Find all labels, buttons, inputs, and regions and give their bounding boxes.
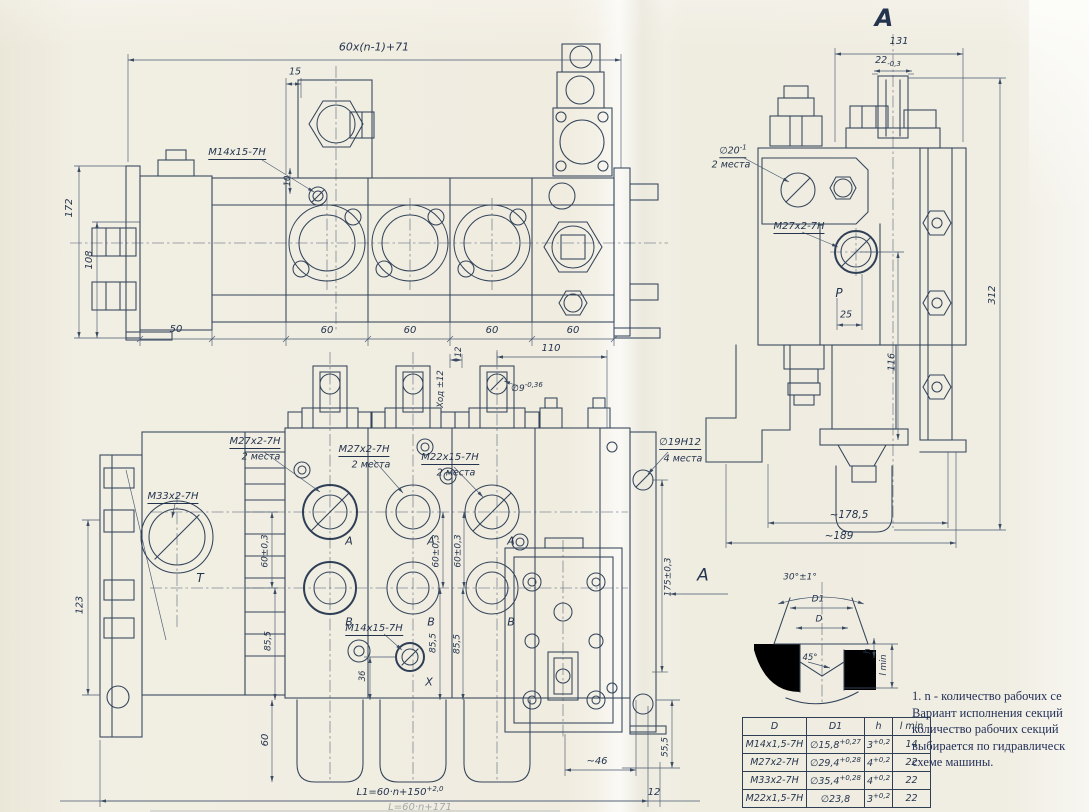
table-cell-d1: ∅35,4+0,28 xyxy=(807,772,865,790)
front-m14-port xyxy=(309,187,327,205)
table-cell-h: 3+0,2 xyxy=(865,736,893,754)
front-dim-60-4: 60 xyxy=(567,326,580,336)
front-dim-60-3: 60 xyxy=(486,326,499,336)
view-a-dim-131: 131 xyxy=(889,37,908,47)
plan-port-b-2: B xyxy=(427,617,435,628)
plan-d19-places: 4 места xyxy=(664,454,703,464)
plan-dim-stroke: Ход ±12 xyxy=(437,370,446,408)
view-a-dim-25: 25 xyxy=(840,310,852,320)
plan-dim-855-3: 85,5 xyxy=(454,634,463,654)
front-right-plate xyxy=(614,168,660,338)
front-left-bolts xyxy=(92,228,136,310)
plan-port-t: T xyxy=(196,572,203,584)
table-cell-d: M27x2-7H xyxy=(743,754,807,772)
table-header-row: D D1 h l min xyxy=(743,718,931,736)
table-cell-d: M22x1,5-7H xyxy=(743,790,807,808)
plan-dim-60-bottom: 60 xyxy=(261,734,271,747)
drawing-notes: 1. n - количество рабочих се Вариант исп… xyxy=(912,688,1089,771)
front-dim-15: 15 xyxy=(289,67,301,77)
plan-dim-l1: L1=60·n+150+2,0 xyxy=(356,786,443,798)
view-a-port-p: P xyxy=(835,287,842,299)
view-a-dim-22: 22-0,3 xyxy=(875,56,901,68)
view-a-callout-d20: ∅20-1 xyxy=(719,144,746,158)
note-line: Вариант исполнения секций xyxy=(912,705,1089,722)
table-cell-d1: ∅29,4+0,28 xyxy=(807,754,865,772)
plan-spool-towers xyxy=(288,366,610,428)
view-a-right-column xyxy=(920,148,952,440)
front-dim-108: 108 xyxy=(85,250,95,269)
view-a-title: A xyxy=(875,6,894,30)
plan-dim-12b: 12 xyxy=(648,788,661,798)
plan-dim-855-1: 85,5 xyxy=(265,631,274,651)
plan-dim-175-03: 175±0,3 xyxy=(665,557,674,596)
view-a-dim-312: 312 xyxy=(988,285,998,304)
plan-dim-123: 123 xyxy=(75,596,85,614)
view-a-dim-116: 116 xyxy=(887,353,897,371)
plan-dim-60-03-2: 60±0,3 xyxy=(433,534,442,567)
table-cell-d: M14x1,5-7H xyxy=(743,736,807,754)
table-row: M22x1,5-7H ∅23,8 3+0,2 22 xyxy=(743,790,931,808)
plan-dim-46: ~46 xyxy=(586,757,607,767)
table-row: M33x2-7H ∅35,4+0,28 4+0,2 22 xyxy=(743,772,931,790)
plan-dim-l2: L=60·n+171 xyxy=(388,803,452,812)
plan-subvalve xyxy=(505,538,622,732)
front-left-cap xyxy=(140,150,212,330)
detail-angle-30: 30°±1° xyxy=(783,574,817,583)
detail-hatch-right xyxy=(844,650,876,690)
front-dim-172: 172 xyxy=(65,198,75,217)
seat-dimensions-table: D D1 h l min M14x1,5-7H ∅15,8+0,27 3+0,2… xyxy=(742,717,931,808)
view-a-dim-189: ~189 xyxy=(825,531,854,542)
table-header-d1: D1 xyxy=(807,718,865,736)
detail-l-min: l min xyxy=(880,654,889,675)
plan-callout-d19: ∅19H12 xyxy=(659,438,701,450)
plan-port-x: X xyxy=(425,677,433,688)
plan-dim-855-2: 85,5 xyxy=(430,633,439,653)
view-a-callout-m27: M27x2-7H xyxy=(773,222,824,234)
plan-ports xyxy=(294,439,528,671)
table-header-h: h xyxy=(865,718,893,736)
table-cell-d1: ∅23,8 xyxy=(807,790,865,808)
drawing-sheet: 60x(n-1)+71 15 M14x15-7H 10 172 108 50 6… xyxy=(0,0,1089,812)
plan-port-a-3: A xyxy=(507,536,515,547)
front-flange-1 xyxy=(289,198,365,290)
plan-callout-m14: M14x15-7H xyxy=(345,624,403,636)
plan-m22-places: 2 места xyxy=(437,468,476,478)
plan-port-a-1: A xyxy=(345,536,353,547)
table-row: M27x2-7H ∅29,4+0,28 4+0,2 22 xyxy=(743,754,931,772)
view-arrow-a-label: A xyxy=(697,568,709,585)
front-dim-60-1: 60 xyxy=(321,326,334,336)
detail-hatch-left xyxy=(754,644,800,692)
plan-dim-36: 36 xyxy=(359,671,368,682)
table-cell-lmin: 22 xyxy=(893,772,931,790)
plan-m27-1-places: 2 места xyxy=(242,452,281,462)
plan-callout-m27-1: M27x2-7H xyxy=(229,437,280,449)
plan-dim-60-03-3: 60±0,3 xyxy=(455,534,464,567)
view-a-top-caps xyxy=(770,86,940,148)
plan-dim-12: 12 xyxy=(455,347,464,358)
plan-callout-m22: M22x15-7H xyxy=(421,453,479,465)
plan-callout-m33: M33x2-7H xyxy=(147,492,198,504)
front-dim-overall: 60x(n-1)+71 xyxy=(339,42,409,53)
plan-section-feet xyxy=(297,700,530,782)
front-left-plate xyxy=(126,166,140,338)
table-cell-d1: ∅15,8+0,27 xyxy=(807,736,865,754)
table-row: M14x1,5-7H ∅15,8+0,27 3+0,2 14 xyxy=(743,736,931,754)
view-a-dim-178: ~178,5 xyxy=(830,510,869,521)
plan-callout-m27-2: M27x2-7H xyxy=(338,445,389,457)
plan-dim-110: 110 xyxy=(541,344,560,354)
plan-m27-2-places: 2 места xyxy=(352,460,391,470)
detail-a-linework xyxy=(754,582,898,704)
note-line: схеме машины. xyxy=(912,754,1089,771)
note-line: количество рабочих секций xyxy=(912,721,1089,738)
front-view-linework xyxy=(70,44,668,346)
plan-right-bracket xyxy=(630,432,666,734)
plan-callout-d9: ∅9-0,36 xyxy=(511,382,543,394)
detail-h: h xyxy=(864,648,873,653)
view-a-lower xyxy=(706,345,966,532)
table-cell-h: 3+0,2 xyxy=(865,790,893,808)
front-top-valve xyxy=(553,44,612,176)
view-a-linework xyxy=(706,34,1006,548)
table-cell-lmin: 22 xyxy=(893,790,931,808)
detail-d1: D1 xyxy=(812,596,825,605)
table-cell-d: M33x2-7H xyxy=(743,772,807,790)
front-callout-m14: M14x15-7H xyxy=(208,148,266,160)
table-header-d: D xyxy=(743,718,807,736)
plan-left-cap xyxy=(141,432,245,695)
table-cell-h: 4+0,2 xyxy=(865,754,893,772)
plan-dim-60-03-1: 60±0,3 xyxy=(262,534,271,567)
front-dim-60-2: 60 xyxy=(404,326,417,336)
note-line: 1. n - количество рабочих се xyxy=(912,688,1089,705)
front-body xyxy=(212,178,614,322)
detail-d: D xyxy=(816,616,823,625)
plan-view-linework xyxy=(60,350,728,811)
plan-dim-555: 55,5 xyxy=(662,737,671,757)
table-cell-h: 4+0,2 xyxy=(865,772,893,790)
view-a-dimensions xyxy=(726,48,1006,548)
front-dim-10: 10 xyxy=(284,176,293,187)
detail-angle-45: 45° xyxy=(802,654,817,663)
view-a-d20-places: 2 места xyxy=(712,160,751,170)
front-dim-50: 50 xyxy=(170,325,183,335)
note-line: выбирается по гидравлическ xyxy=(912,738,1089,755)
front-dimensions xyxy=(74,54,621,346)
front-flange-3 xyxy=(454,198,530,290)
front-flange-2 xyxy=(372,198,448,290)
plan-port-b-3: B xyxy=(507,617,515,628)
